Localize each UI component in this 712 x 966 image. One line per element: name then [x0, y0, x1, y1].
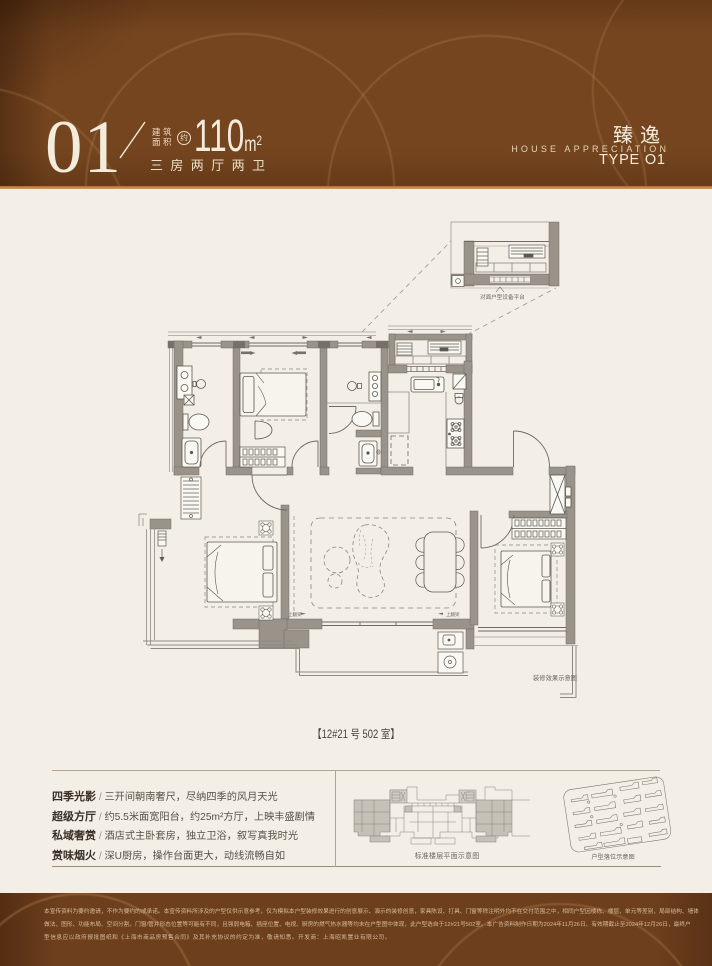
svg-text:上翻梁: 上翻梁	[288, 611, 302, 618]
svg-text:装修效果示意图: 装修效果示意图	[533, 673, 577, 682]
svg-text:上翻梁: 上翻梁	[446, 611, 460, 618]
svg-text:对面户型设备平台: 对面户型设备平台	[480, 293, 525, 301]
